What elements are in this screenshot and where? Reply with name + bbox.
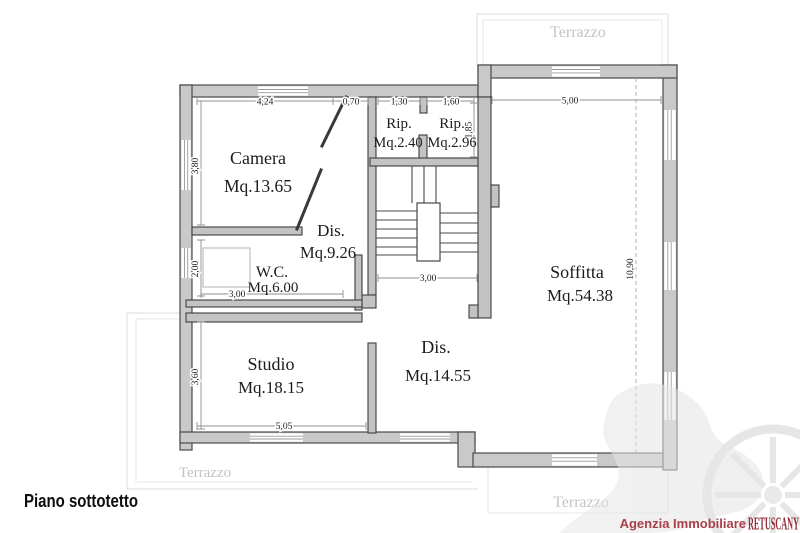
room-soffitta-name: Soffitta bbox=[550, 262, 604, 282]
dim-soffitta-height: 10,90 bbox=[626, 258, 636, 280]
room-rip2-name: Rip. bbox=[439, 116, 464, 132]
terrace-top-label: Terrazzo bbox=[550, 24, 606, 41]
room-dis1-area: Mq.9.26 bbox=[300, 243, 356, 262]
room-studio-area: Mq.18.15 bbox=[238, 378, 304, 397]
room-camera-area: Mq.13.65 bbox=[224, 176, 292, 196]
wall-top-left bbox=[180, 85, 478, 97]
wall-top-connector bbox=[478, 65, 491, 97]
wall-stair-left bbox=[368, 97, 376, 295]
room-dis2-area: Mq.14.55 bbox=[405, 366, 471, 385]
room-dis1-name: Dis. bbox=[317, 221, 345, 240]
room-soffitta-area: Mq.54.38 bbox=[547, 286, 613, 305]
wc-fixture bbox=[203, 248, 250, 287]
terrace-bottom-left-label: Terrazzo bbox=[179, 465, 231, 481]
room-dis2-name: Dis. bbox=[421, 337, 451, 357]
agency-name-logo: RETUSCANY bbox=[748, 514, 799, 533]
dim-camera-width: 4,24 bbox=[257, 98, 274, 108]
dim-studio-height: 3,60 bbox=[191, 368, 201, 385]
dim-rip1-width: 1,30 bbox=[391, 98, 408, 108]
terrace-top: Terrazzo bbox=[477, 14, 668, 65]
wall-rip-divider bbox=[420, 97, 427, 113]
room-camera-name: Camera bbox=[230, 148, 286, 168]
window-camera-left bbox=[181, 140, 190, 190]
window-bottom-2 bbox=[400, 433, 450, 441]
wall-studio-top bbox=[186, 313, 362, 322]
wall-studio-divider bbox=[368, 343, 376, 433]
plan-title: Piano sottotetto bbox=[24, 491, 138, 511]
dim-gap-width: 0,70 bbox=[343, 98, 360, 108]
room-rip2-area: Mq.2.96 bbox=[427, 135, 476, 151]
window-bottom-1 bbox=[250, 433, 303, 441]
agency-branding: Agenzia Immobiliare RETUSCANY bbox=[620, 514, 799, 533]
room-wc-area: Mq.6.00 bbox=[248, 280, 299, 296]
window-right-1 bbox=[664, 110, 675, 160]
window-soffitta-bottom bbox=[552, 454, 597, 465]
room-studio-name: Studio bbox=[247, 354, 294, 374]
dim-soffitta-width: 5,00 bbox=[562, 97, 579, 107]
dim-wc-width: 3,00 bbox=[229, 290, 246, 300]
wall-wc-bottom bbox=[186, 300, 362, 307]
floor-plan-svg: Terrazzo Terrazzo Terrazzo bbox=[0, 0, 800, 533]
floor-plan-page: Terrazzo Terrazzo Terrazzo bbox=[0, 0, 800, 533]
dim-studio-width: 5,05 bbox=[276, 422, 293, 432]
room-wc-name: W.C. bbox=[256, 264, 288, 281]
agency-prefix-label: Agenzia Immobiliare bbox=[620, 516, 746, 531]
wall-rip-bottom bbox=[370, 158, 478, 166]
doors bbox=[297, 97, 346, 229]
wall-camera-bottom bbox=[192, 227, 302, 235]
dim-camera-height: 3,80 bbox=[191, 157, 201, 174]
dim-stairs-width: 3,00 bbox=[420, 274, 437, 284]
window-top-left bbox=[258, 86, 308, 95]
window-wc-left bbox=[181, 248, 190, 278]
room-rip1-name: Rip. bbox=[386, 116, 411, 132]
window-soffitta-top bbox=[552, 66, 600, 76]
staircase bbox=[376, 166, 478, 261]
dim-rip2-width: 1,60 bbox=[443, 98, 460, 108]
window-right-2 bbox=[664, 242, 675, 290]
wall-stair-soffitta-divider bbox=[478, 97, 491, 318]
dim-wc-height: 2,00 bbox=[191, 260, 201, 277]
stair-well-slot bbox=[417, 203, 440, 261]
room-rip1-area: Mq.2.40 bbox=[373, 135, 422, 151]
